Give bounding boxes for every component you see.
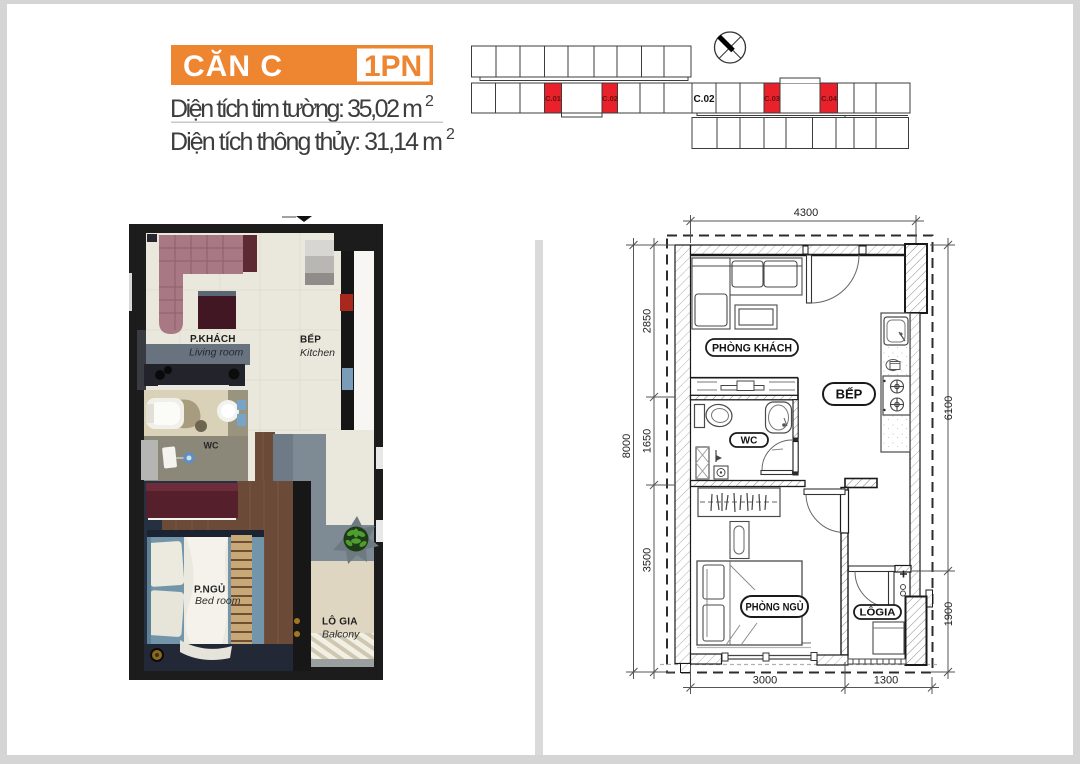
svg-text:4300: 4300 (794, 207, 818, 219)
svg-text:C.03: C.03 (764, 94, 780, 103)
svg-text:1PN: 1PN (364, 50, 422, 83)
svg-text:BẾP: BẾP (836, 387, 863, 402)
svg-text:LÔ GIA: LÔ GIA (322, 615, 358, 628)
svg-text:6100: 6100 (943, 396, 955, 420)
svg-text:Bed room: Bed room (195, 595, 241, 607)
svg-text:1900: 1900 (943, 602, 955, 626)
svg-text:2: 2 (446, 126, 455, 143)
svg-text:C.02: C.02 (693, 94, 715, 105)
svg-text:LÔGIA: LÔGIA (860, 606, 896, 619)
svg-text:2: 2 (425, 93, 434, 110)
svg-text:C.02: C.02 (602, 94, 618, 103)
svg-text:Kitchen: Kitchen (300, 347, 335, 359)
svg-text:3500: 3500 (642, 548, 654, 572)
svg-text:Balcony: Balcony (322, 629, 360, 641)
svg-text:Diện tích tim tường: 35,02 m: Diện tích tim tường: 35,02 m (170, 95, 423, 123)
svg-text:PHÒNG NGỦ: PHÒNG NGỦ (746, 601, 804, 614)
svg-text:C.01: C.01 (545, 94, 561, 103)
svg-text:C.04: C.04 (821, 94, 838, 103)
svg-text:PHÒNG KHÁCH: PHÒNG KHÁCH (712, 342, 792, 355)
svg-text:WC: WC (741, 436, 758, 447)
svg-text:P.NGỦ: P.NGỦ (194, 583, 225, 596)
svg-text:CĂN C: CĂN C (183, 49, 283, 83)
svg-text:Living room: Living room (189, 347, 244, 359)
svg-text:1650: 1650 (642, 429, 654, 453)
svg-text:P.KHÁCH: P.KHÁCH (190, 332, 236, 345)
svg-text:Diện tích thông thủy: 31,14 m: Diện tích thông thủy: 31,14 m (170, 128, 443, 156)
svg-text:WC: WC (204, 441, 219, 451)
svg-text:8000: 8000 (621, 434, 633, 458)
svg-text:2850: 2850 (642, 309, 654, 333)
svg-text:BẾP: BẾP (300, 333, 321, 346)
svg-text:1300: 1300 (874, 675, 898, 687)
svg-text:3000: 3000 (753, 675, 777, 687)
